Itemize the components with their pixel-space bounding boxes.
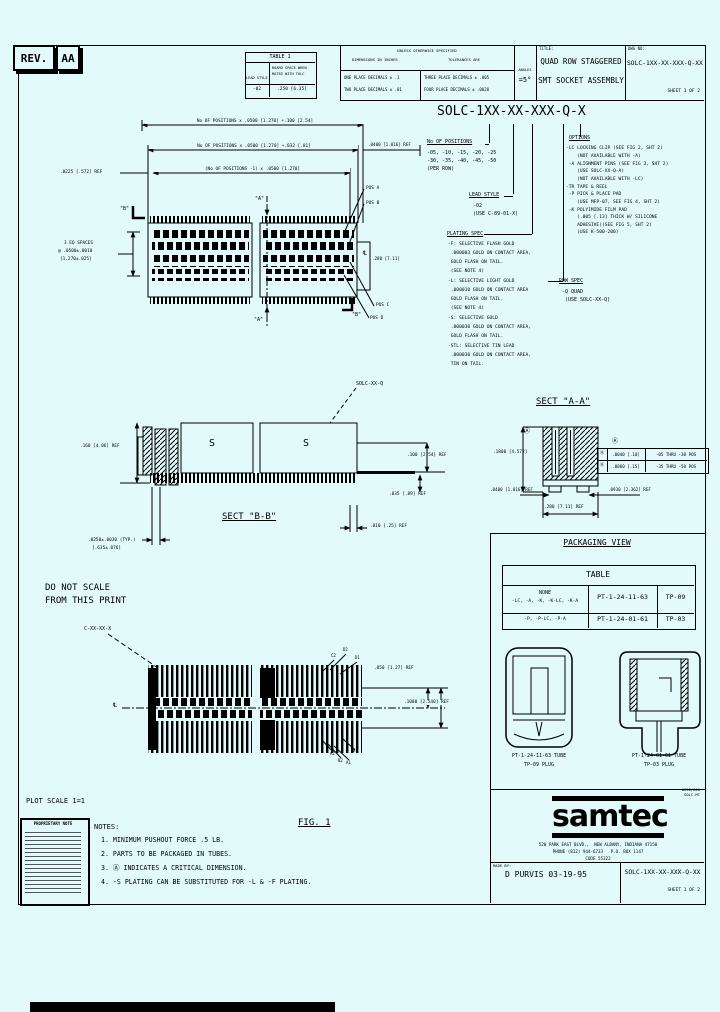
dim-label: No OF POSITIONS x .0500 [1.270] +.032 [.… [150, 144, 358, 149]
row-spec-line: -Q QUAD [562, 289, 583, 295]
note-item: 2. PARTS TO BE PACKAGED IN TUBES. [101, 851, 232, 859]
angles-value: =5° [514, 76, 536, 84]
rev-label: REV. [21, 52, 48, 65]
tolerance-header: UNLESS OTHERWISE SPECIFIED [342, 49, 512, 54]
positions-line: -05, -10, -15, -20, -25 [427, 150, 496, 156]
table1-col-space1: BOARD SPACE WHEN [272, 66, 307, 70]
plating-line: -L: SELECTIVE LIGHT GOLD [448, 279, 514, 285]
plating-line: GOLD FLASH ON TAIL. [448, 260, 503, 266]
pos-d-label: POS D [370, 316, 383, 321]
plating-line: TIN ON TAIL. [448, 362, 484, 368]
pad-label: B2 [338, 759, 343, 764]
positions-line: (PER ROW) [427, 166, 454, 172]
footer-sheet: SHEET 1 OF 2 [630, 888, 700, 893]
do-not-scale-text: FROM THIS PRINT [45, 596, 126, 607]
lead-style-title: LEAD STYLE [469, 192, 499, 198]
samtec-logo: samtec [552, 796, 664, 838]
plating-line: (SEE NOTE 4) [448, 269, 484, 275]
pad-label: C2 [331, 654, 336, 659]
title-label: TITLE: [539, 47, 553, 52]
options-line: (USE MFP-07, SEE FIG 4, SHT 2) [566, 200, 660, 206]
coplanarity-cell: .0060 [.15] [607, 464, 645, 469]
plating-line: -F: SELECTIVE FLASH GOLD [448, 242, 514, 248]
sect-aa-label: SECT "A-A" [536, 397, 590, 408]
fig1-part-label: C-XX-XX-X [84, 626, 111, 632]
title-line1: QUAD ROW STAGGERED [537, 57, 625, 66]
options-line: (NOT AVAILABLE WITH -LC) [566, 177, 643, 183]
tolerance-sub-left: DIMENSIONS IN INCHES [352, 58, 398, 63]
eq-spaces-label: @ .0500±.0010 [58, 249, 92, 254]
plating-line: -S: SELECTIVE GOLD [448, 316, 498, 322]
dim-label: .160 [4.06] REF [80, 444, 120, 449]
packaging-heading: PACKAGING VIEW [490, 538, 704, 548]
table1-col-space2: MATED WITH TOLC [272, 72, 304, 76]
coplanarity-cell: Ⓐ [597, 463, 607, 468]
rev-label-box: REV. [13, 45, 55, 71]
footer-address: 520 PARK EAST BLVD., NEW ALBANY, INDIANA… [492, 842, 704, 847]
options-line: -A ALIGNMENT PINS (SEE FIG 3, SHT 2) [566, 162, 668, 168]
footer-address: CODE 55322 [492, 856, 704, 861]
options-line: (USE K-500-200) [566, 230, 619, 236]
plot-scale-label: PLOT SCALE 1=1 [26, 797, 85, 805]
packaging-cell: PT-1-24-01-61 [588, 616, 657, 624]
rev-value: AA [61, 52, 74, 65]
datum-symbol: Ⓐ [612, 438, 618, 445]
tolerance-one-place: ONE PLACE DECIMALS ± .1 [344, 76, 399, 81]
dim-label: .050 [1.27] REF [374, 666, 414, 671]
coplanarity-cell: Ⓐ [597, 451, 607, 456]
dim-label: .0930 [2.362] REF [608, 487, 651, 492]
tube2-caption: TP-03 PLUG [608, 762, 710, 768]
options-line: -LC LOCKING CLIP (SEE FIG 2, SHT 2) [566, 146, 663, 152]
dim-label: .280 [7.11] [372, 256, 400, 261]
eq-spaces-label: [1.270±.025] [60, 257, 92, 262]
lead-style-line: (USE C-89-01-X) [473, 211, 518, 217]
title-line2: SMT SOCKET ASSEMBLY [537, 76, 625, 85]
dim-label: [.635±.076] [92, 546, 121, 551]
packaging-cell: TP-09 [657, 594, 694, 602]
tube1-caption: PT-1-24-11-63 TUBE [488, 753, 590, 759]
plating-line: (SEE NOTE 4) [448, 306, 484, 312]
dim-label: .100 [2.54] REF [407, 453, 447, 458]
options-line: (NOT AVAILABLE WITH -A) [566, 154, 641, 160]
note-item: 4. -S PLATING CAN BE SUBSTITUTED FOR -L … [101, 879, 311, 887]
dim-label: .0400 [1.016] REF [490, 487, 533, 492]
plating-line: .000003 GOLD ON CONTACT AREA, [448, 251, 531, 257]
packaging-cell: -P, -P-LC, -P-A [502, 617, 588, 623]
pos-a-label: POS A [366, 186, 379, 191]
tolerance-three-place: THREE PLACE DECIMALS ± .005 [424, 76, 489, 81]
part-ref-label: SOLC-XX-Q [356, 381, 383, 387]
section-mark-b: "B" [120, 206, 129, 212]
dim-label: .1000 [2.540] REF [404, 700, 449, 705]
packaging-table-title: TABLE [502, 570, 694, 580]
table1-row-lead: -02 [245, 87, 269, 92]
positions-title: No OF POSITIONS [427, 139, 472, 145]
pad-label: B1 [353, 749, 358, 754]
drawing-sheet: REV. AA TABLE 1 LEAD STYLE BOARD SPACE W… [0, 0, 720, 1012]
tolerance-two-place: TWO PLACE DECIMALS ± .01 [344, 88, 402, 93]
packaging-cell: -LC, -A, -K, -K-LC, -K-A [502, 599, 588, 605]
options-line: -TR TAPE & REEL [566, 185, 608, 191]
tube1-caption: TP-09 PLUG [488, 762, 590, 768]
options-line: (.005 [.13] THICK W/ SILICONE [566, 215, 657, 221]
datum-symbol: Ⓐ [524, 428, 530, 435]
dim-label: .035 [.89] REF [389, 492, 426, 497]
plating-line: .000010 GOLD ON CONTACT AREA [448, 288, 528, 294]
coplanarity-cell: .0040 [.10] [607, 452, 645, 457]
pad-label: A2 [330, 752, 335, 757]
dwg-no: SOLC-1XX-XX-XXX-Q-XX [627, 60, 703, 68]
options-title: OPTIONS [569, 135, 590, 141]
plating-line: -STL: SELECTIVE TIN LEAD [448, 344, 514, 350]
pos-b-label: POS B [366, 201, 379, 206]
part-number: SOLC-1XX-XX-XXX-Q-X [437, 104, 586, 120]
dim-label: .0225 [.572] REF [60, 170, 102, 175]
options-line: ADHESIVE)(SEE FIG 5, SHT 2) [566, 223, 652, 229]
positions-line: -30, -35, -40, -45, -50 [427, 158, 496, 164]
table1-row-space: .250 [6.35] [269, 87, 315, 92]
centerline-symbol: ℄ [363, 250, 367, 257]
dim-label: No OF POSITIONS x .0500 [1.270] +.100 [2… [145, 119, 365, 124]
scan-artifact-bar [30, 1002, 335, 1012]
dwg-no-label: DWG NO: [628, 47, 645, 52]
lead-style-line: -02 [473, 203, 482, 209]
table1-title: TABLE 1 [245, 54, 315, 60]
section-mark-a: "A" [254, 317, 263, 323]
samtec-logo-text: samtec [552, 799, 668, 834]
made-by-value: D PURVIS 03-19-95 [505, 870, 587, 880]
rev-value-box: AA [56, 45, 80, 71]
eq-spaces-label: 3 EQ SPACES [64, 241, 93, 246]
dim-label: .280 [7.11] REF [544, 505, 584, 510]
body-mark: S [209, 438, 215, 450]
options-line: -P PICK & PLACE PAD [566, 192, 621, 198]
row-spec-line: (USE SOLC-XX-Q) [565, 297, 610, 303]
table1-col-lead: LEAD STYLE [246, 76, 268, 80]
plating-line: .000030 GOLD ON CONTACT AREA, [448, 325, 531, 331]
sheet-number: SHEET 1 OF 2 [640, 89, 700, 94]
footer-address: PHONE (812) 944-6733 P.O. BOX 1147 [492, 849, 704, 854]
plating-line: GOLD FLASH ON TAIL. [448, 297, 503, 303]
pad-label: A1 [346, 761, 351, 766]
pos-c-label: POS C [376, 303, 389, 308]
body-mark: S [303, 438, 309, 450]
note-item: 3. Ⓐ INDICATES A CRITICAL DIMENSION. [101, 865, 247, 873]
dim-label: .1800 [4.572] [493, 450, 527, 455]
dim-label: (No OF POSITIONS -1) x .0500 [1.270] [155, 167, 350, 172]
packaging-cell: NONE [502, 590, 588, 596]
dim-label: .0250±.0030 (TYP.) [88, 538, 136, 543]
coplanarity-cell: -35 THRU -50 POS [645, 464, 707, 469]
packaging-cell: PT-1-24-11-63 [588, 594, 657, 602]
options-line: (USE SOLC-XX-Q-A) [566, 169, 624, 175]
note-item: 1. MINIMUM PUSHOUT FORCE .5 LB. [101, 837, 224, 845]
made-by-label: MADE BY: [493, 864, 511, 869]
footer-dwg-no: SOLC-1XX-XX-XXX-Q-XX [621, 869, 704, 877]
plating-spec-title: PLATING SPEC [447, 231, 483, 237]
notes-heading: NOTES: [94, 823, 119, 831]
coplanarity-cell: -05 THRU -30 POS [645, 452, 707, 457]
do-not-scale-text: DO NOT SCALE [45, 583, 110, 594]
plating-line: GOLD FLASH ON TAIL. [448, 334, 503, 340]
centerline-symbol: ℄ [113, 702, 117, 709]
dim-label: .010 [.25] REF [370, 524, 407, 529]
row-spec-title: ROW SPEC [559, 278, 583, 284]
pad-label: D2 [343, 648, 348, 653]
pad-label: D1 [355, 656, 360, 661]
sect-bb-label: SECT "B-B" [222, 512, 276, 523]
fig1-heading: FIG. 1 [298, 818, 331, 829]
plating-line: .000030 GOLD ON CONTACT AREA, [448, 353, 531, 359]
tolerance-sub-right: TOLERANCES ARE [448, 58, 480, 63]
section-mark-b: "B" [352, 312, 361, 318]
tube2-caption: PT-1-24-01-61 TUBE [608, 753, 710, 759]
footer-small-text: SOLC-MT [640, 793, 700, 798]
proprietary-note-text [25, 832, 81, 896]
angles-label: ANGLES [514, 68, 536, 72]
section-mark-a: "A" [255, 196, 264, 202]
proprietary-note-heading: PROPRIETARY NOTE [21, 822, 85, 827]
tolerance-four-place: FOUR PLACE DECIMALS ± .0020 [424, 88, 489, 93]
dim-label: .0400 [1.016] REF [368, 142, 411, 147]
options-line: -K POLYIMIDE FILM PAD [566, 208, 627, 214]
packaging-cell: TP-03 [657, 616, 694, 624]
